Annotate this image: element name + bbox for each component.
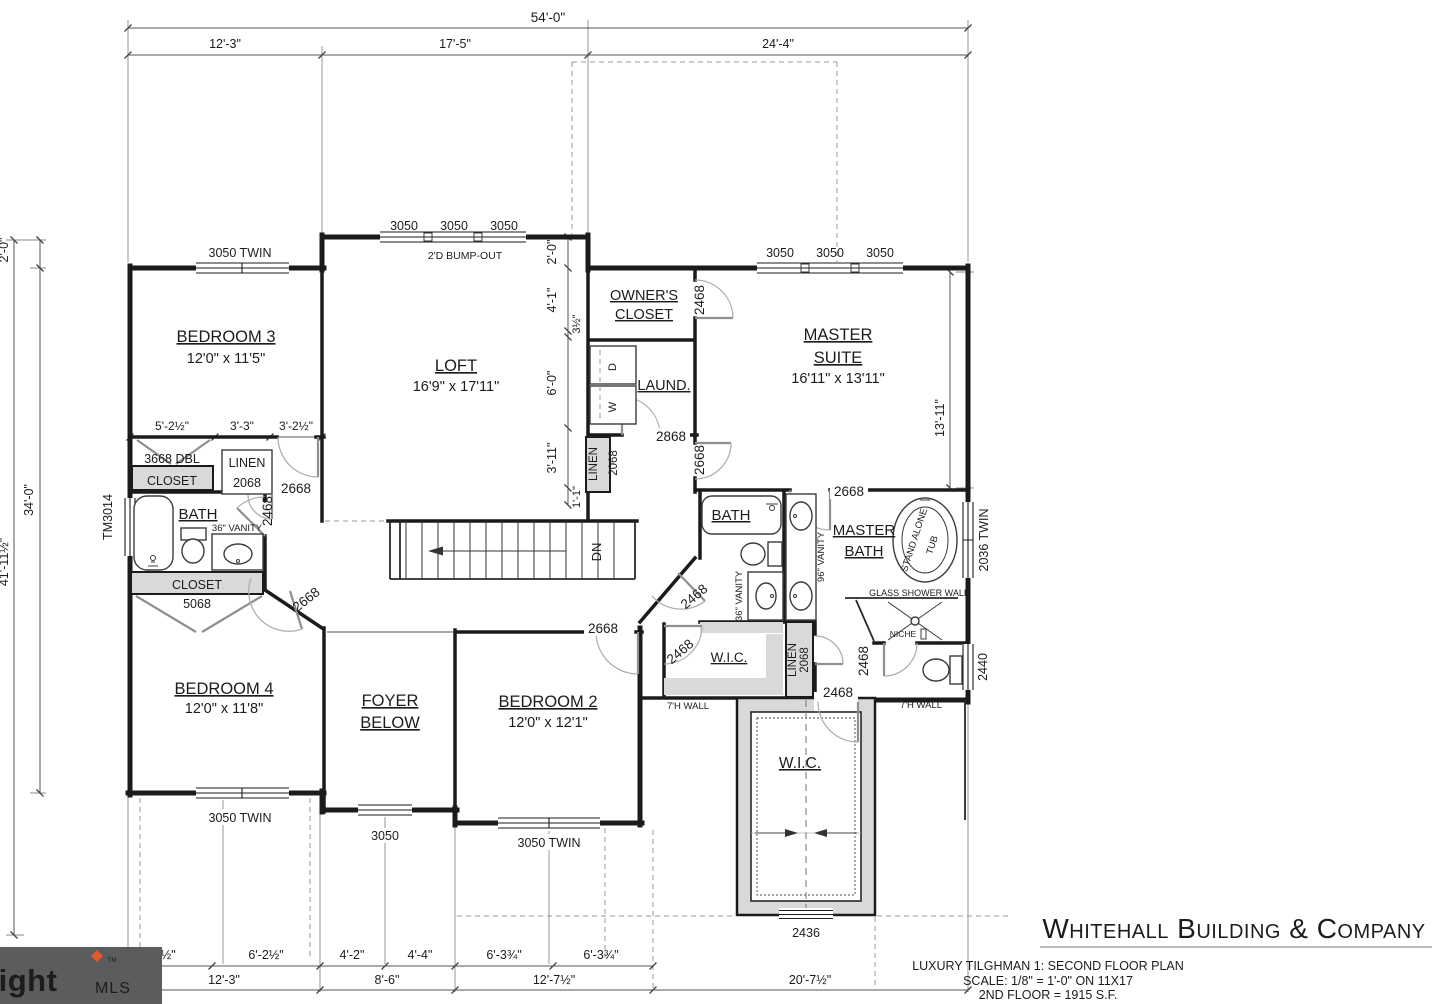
dryer-label: D xyxy=(607,363,619,371)
brightmls-logo-suffix: MLS xyxy=(95,980,131,997)
dim-chain-3: 3½" xyxy=(571,314,583,333)
plan-scale: SCALE: 1/8" = 1'-0" ON 11X17 xyxy=(963,974,1133,988)
dim-closet-1: 5'-2½" xyxy=(155,419,189,433)
door-bed2-label: 2668 xyxy=(588,621,618,636)
washer-label: W xyxy=(607,401,619,412)
glass-shower-wall-label: GLASS SHOWER WALL xyxy=(869,588,969,598)
watermark: bright TM MLS xyxy=(0,947,162,1004)
window-bed4 xyxy=(196,787,289,799)
room-foyer-2: BELOW xyxy=(360,714,420,732)
wall7-right-label: 7'H WALL xyxy=(900,700,942,711)
closet-dbl-1: 3668 DBL xyxy=(144,452,200,466)
linen-stairs-1: LINEN xyxy=(588,447,600,481)
dim-left-bump: 2'-0" xyxy=(0,238,11,263)
dim-bottom-l2: 8'-6" xyxy=(375,973,400,987)
door-wic-master-label: 2468 xyxy=(823,685,853,700)
window-2036-twin xyxy=(962,502,974,578)
plan-area: 2ND FLOOR = 1915 S.F. xyxy=(979,988,1118,1002)
closet-5068-1: CLOSET xyxy=(172,578,222,592)
dim-bottom-u2: 6'-2½" xyxy=(248,948,283,962)
door-master-suite-label: 2668 xyxy=(692,445,707,475)
window-master xyxy=(757,262,903,274)
door-laundry-label: 2868 xyxy=(656,429,686,444)
window-bed3-label: 3050 TWIN xyxy=(209,246,272,260)
window-bed2-label: 3050 TWIN xyxy=(518,836,581,850)
window-foyer xyxy=(358,804,412,816)
toilet-room-icon xyxy=(923,656,962,684)
window-2440-label: 2440 xyxy=(976,653,990,681)
room-bath-hall: BATH xyxy=(712,507,751,524)
room-master-1: MASTER xyxy=(804,326,873,344)
window-master-label-2: 3050 xyxy=(816,246,844,260)
room-bed4-name: BEDROOM 4 xyxy=(174,680,273,698)
stairs xyxy=(406,521,614,579)
room-laundry: LAUND. xyxy=(637,378,690,394)
vanity36-hall-label: 36" VANITY xyxy=(734,570,745,621)
dim-top-seg3: 24'-4" xyxy=(762,37,794,51)
window-2436-label: 2436 xyxy=(792,926,820,940)
toilet-hall-icon xyxy=(741,542,782,566)
dim-right-master: 13'-11" xyxy=(933,399,947,437)
door-owners-closet-label: 2468 xyxy=(692,285,707,315)
plan-title: LUXURY TILGHMAN 1: SECOND FLOOR PLAN xyxy=(912,959,1184,973)
bathtub-icon xyxy=(134,496,173,570)
room-bath-left: BATH xyxy=(179,506,218,523)
room-master-bath-1: MASTER xyxy=(833,522,896,539)
window-bed3-top xyxy=(196,262,289,274)
vanity-sink-icon xyxy=(212,534,263,570)
stairs-direction-arrow xyxy=(428,547,443,556)
linen-stairs-2: 2068 xyxy=(608,450,620,476)
linen-hall-2: 2068 xyxy=(799,647,811,673)
vanity-96-icon xyxy=(786,494,816,620)
dim-bottom-l4: 20'-7½" xyxy=(789,973,831,987)
room-bed3-name: BEDROOM 3 xyxy=(176,328,275,346)
wic-bed2-shade-top xyxy=(700,622,783,633)
window-bed2 xyxy=(498,817,600,829)
room-master-size: 16'11" x 13'11" xyxy=(791,371,885,387)
dim-top-seg2: 17'-5" xyxy=(439,37,471,51)
dim-bottom-l3: 12'-7½" xyxy=(533,973,575,987)
window-master-label-1: 3050 xyxy=(766,246,794,260)
linen-hall-1: LINEN xyxy=(787,643,799,677)
window-2440 xyxy=(962,644,974,690)
room-loft-name: LOFT xyxy=(435,357,477,375)
dim-chain-6: 1'-1" xyxy=(571,486,583,508)
door-linen-hall xyxy=(815,636,843,664)
dim-bottom-u5: 6'-3¾" xyxy=(486,948,521,962)
dim-top-seg1: 12'-3" xyxy=(209,37,241,51)
vanity96-label: 96" VANITY xyxy=(816,531,827,582)
bump-out-note: 2'D BUMP-OUT xyxy=(428,250,503,262)
closet-dbl-2: CLOSET xyxy=(147,474,197,488)
dim-left-main: 34'-0" xyxy=(22,484,36,516)
dim-bottom-u4: 4'-4" xyxy=(408,948,433,962)
dim-overall-width: 54'-0" xyxy=(531,10,566,25)
room-owners-closet-1: OWNER'S xyxy=(610,288,678,304)
dim-bottom-u3: 4'-2" xyxy=(340,948,365,962)
niche-label: NICHE xyxy=(890,629,917,639)
window-loft-label-2: 3050 xyxy=(440,219,468,233)
wall7-left-label: 7'H WALL xyxy=(667,701,709,712)
company-logo-text: Whitehall Building & Company xyxy=(1042,913,1425,944)
door-bed4-label: 2668 xyxy=(290,584,323,614)
door-toilet-label: 2468 xyxy=(856,646,871,676)
window-loft-label-1: 3050 xyxy=(390,219,418,233)
dim-left-overall: 41'-11½" xyxy=(0,538,11,586)
dim-chain-2: 4'-1" xyxy=(545,288,559,313)
brightmls-tm: TM xyxy=(107,957,116,964)
linen-bath-1: LINEN xyxy=(229,456,266,470)
window-bed4-label: 3050 TWIN xyxy=(209,811,272,825)
window-tm3014-label: TM3014 xyxy=(101,494,115,540)
vanity36-left-label: 36" VANITY xyxy=(212,523,263,534)
room-wic-bed2: W.I.C. xyxy=(711,650,748,665)
door-bed3-label: 2668 xyxy=(281,481,311,496)
room-owners-closet-2: CLOSET xyxy=(615,307,673,323)
wic-bed2-shade-bottom xyxy=(664,678,783,695)
room-bed2-name: BEDROOM 2 xyxy=(498,693,597,711)
linen-bath-2: 2068 xyxy=(233,476,261,490)
room-foyer-1: FOYER xyxy=(362,692,419,710)
dim-bottom-l1: 12'-3" xyxy=(208,973,240,987)
window-2036-label: 2036 TWIN xyxy=(977,509,991,572)
closet-5068-2: 5068 xyxy=(183,597,211,611)
dim-closet-3: 3'-2½" xyxy=(279,419,313,433)
room-wic-master: W.I.C. xyxy=(779,755,821,772)
room-loft-size: 16'9" x 17'11" xyxy=(413,379,500,395)
vanity-hall-icon xyxy=(748,572,783,620)
door-bed2 xyxy=(596,632,638,674)
room-master-bath-2: BATH xyxy=(845,543,884,560)
room-bed3-size: 12'0" x 11'5" xyxy=(187,351,265,367)
door-wic-bed2-label: 2468 xyxy=(664,636,697,667)
room-bed2-size: 12'0" x 12'1" xyxy=(508,715,588,731)
master-wic xyxy=(737,692,875,922)
dim-closet-2: 3'-3" xyxy=(230,419,254,433)
wic-bed2-shade-right xyxy=(766,634,783,678)
stairs-dn-label: DN xyxy=(589,543,604,562)
door-master-bath-label: 2668 xyxy=(834,484,864,499)
room-master-2: SUITE xyxy=(814,349,863,367)
window-master-label-3: 3050 xyxy=(866,246,894,260)
window-foyer-label: 3050 xyxy=(371,829,399,843)
window-loft-label-3: 3050 xyxy=(490,219,518,233)
dim-chain-4: 6'-0" xyxy=(545,371,559,396)
dim-chain-1: 2'-0" xyxy=(545,240,559,265)
door-bath-left-label: 2468 xyxy=(260,496,275,526)
room-bed4-size: 12'0" x 11'8" xyxy=(185,701,263,717)
dim-bottom-u6: 6'-3¾" xyxy=(583,948,618,962)
toilet-icon xyxy=(181,528,206,563)
brightmls-logo-brand: bright xyxy=(0,963,57,998)
door-toilet-room xyxy=(884,643,917,676)
thin-walls xyxy=(390,521,965,820)
door-bed3 xyxy=(278,437,318,477)
title-block: Whitehall Building & Company LUXURY TILG… xyxy=(912,913,1432,1002)
dim-chain-5: 3'-11" xyxy=(545,443,559,474)
floor-plan-page: ox="0 0 1437 1004" viewBox="0 0 1437 100… xyxy=(0,0,1437,1004)
